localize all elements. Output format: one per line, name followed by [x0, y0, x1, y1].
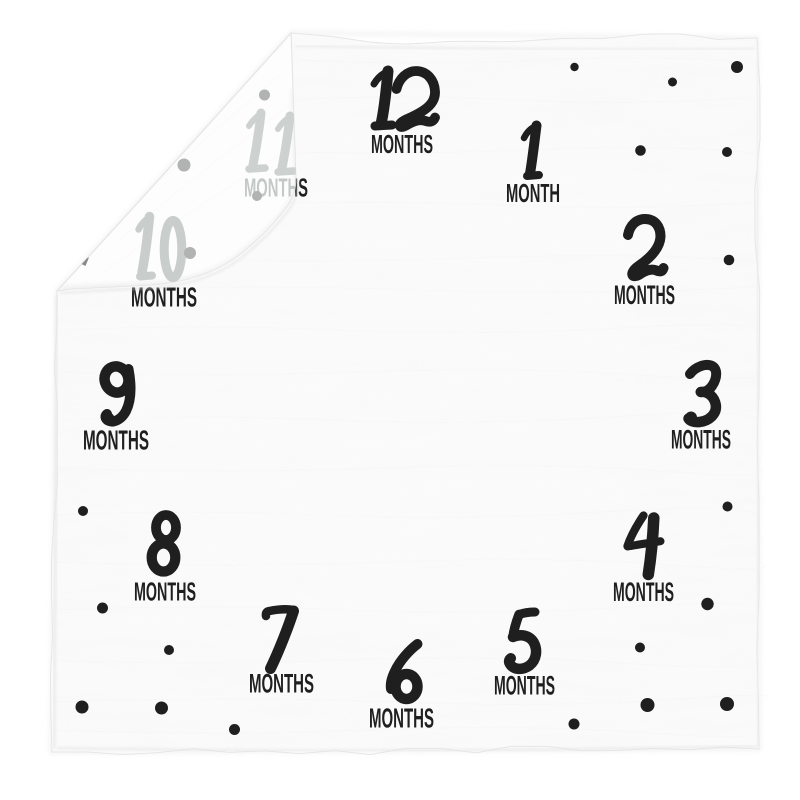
svg-text:MONTHS: MONTHS [494, 671, 555, 701]
svg-text:MONTHS: MONTHS [369, 703, 434, 734]
svg-text:MONTHS: MONTHS [249, 669, 314, 699]
svg-text:MONTHS: MONTHS [134, 577, 196, 607]
svg-text:MONTHS: MONTHS [371, 129, 433, 159]
svg-text:MONTHS: MONTHS [83, 425, 149, 456]
svg-text:MONTH: MONTH [506, 178, 560, 208]
svg-text:MONTHS: MONTHS [613, 577, 674, 607]
svg-text:MONTHS: MONTHS [614, 280, 675, 310]
svg-text:MONTHS: MONTHS [671, 425, 731, 455]
